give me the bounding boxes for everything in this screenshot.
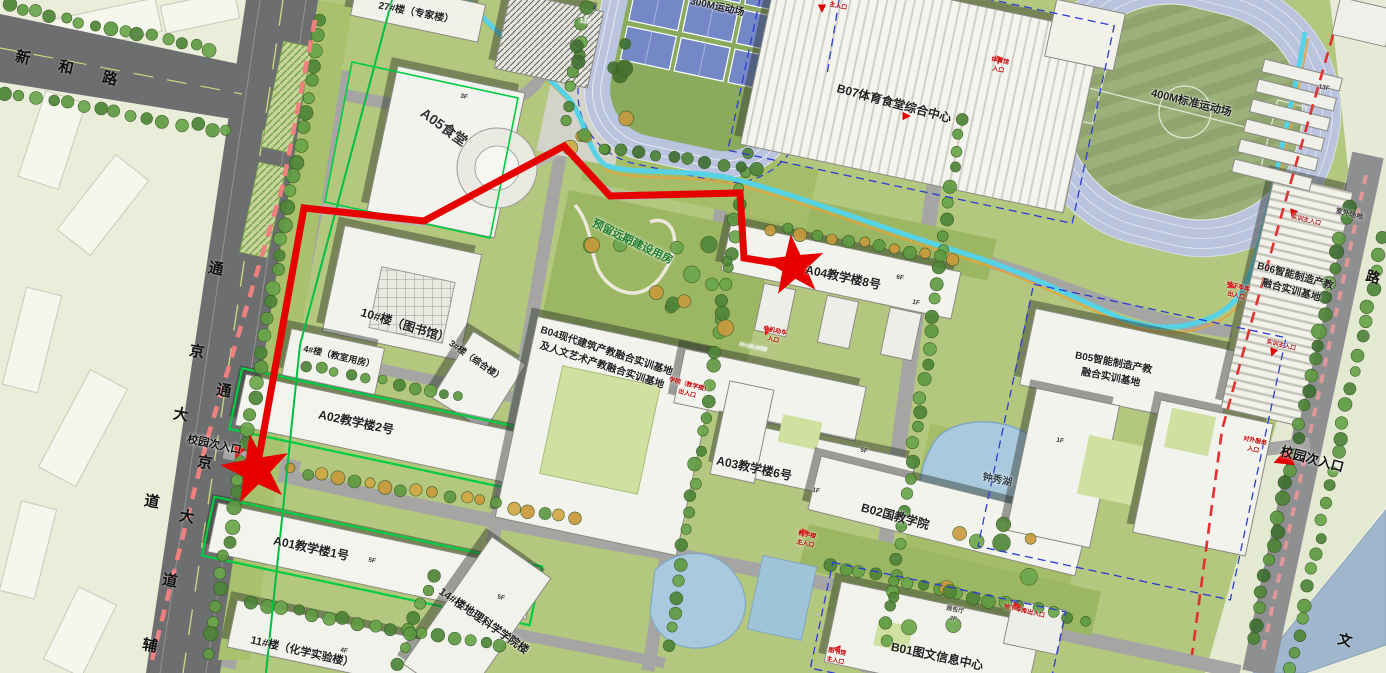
tree-icon [620, 38, 631, 49]
tree-icon [1283, 662, 1295, 673]
tree-icon [564, 101, 575, 112]
tree-icon [942, 197, 953, 208]
tree-icon [632, 146, 645, 159]
tree-icon [403, 627, 416, 640]
tree-icon [561, 115, 572, 126]
tree-icon [717, 320, 734, 337]
tree-icon [1020, 568, 1037, 585]
tree-icon [206, 124, 220, 138]
tree-icon [930, 278, 943, 291]
tree-icon [718, 159, 730, 171]
tree-icon [360, 373, 370, 383]
tree-icon [78, 101, 90, 113]
tree-icon [336, 611, 349, 624]
tree-icon [303, 470, 314, 481]
tree-icon [901, 620, 916, 635]
tree-icon [1319, 291, 1332, 304]
tree-icon [1376, 231, 1386, 243]
tree-icon [1311, 324, 1326, 339]
tree-icon [214, 582, 228, 596]
tree-icon [254, 361, 268, 375]
tree-icon [462, 491, 474, 503]
tree-icon [305, 609, 318, 622]
tree-icon [950, 162, 960, 172]
tree-icon [881, 635, 893, 647]
tree-icon [202, 43, 216, 57]
tree-icon [901, 488, 913, 500]
tree-icon [254, 347, 267, 360]
tree-icon [1257, 569, 1270, 582]
tree-icon [1254, 602, 1266, 614]
tree-icon [378, 481, 392, 495]
tree-icon [1367, 282, 1381, 296]
tree-icon [295, 139, 309, 153]
tree-icon [426, 486, 437, 497]
tree-icon [842, 235, 854, 247]
tree-icon [274, 601, 288, 615]
tree-icon [956, 113, 968, 125]
tree-icon [163, 34, 174, 45]
tree-icon [826, 234, 837, 245]
tree-icon [1324, 480, 1335, 491]
tree-icon [481, 637, 492, 648]
tree-icon [704, 380, 716, 392]
tree-icon [176, 119, 189, 132]
tree-icon [141, 113, 153, 125]
tree-icon [1319, 308, 1333, 322]
tree-icon [1275, 491, 1289, 505]
tree-icon [176, 38, 187, 49]
tree-icon [453, 391, 462, 400]
tree-icon [297, 121, 310, 134]
tree-icon [675, 539, 688, 552]
tree-icon [879, 617, 892, 630]
tree-icon [265, 295, 278, 308]
tree-icon [17, 4, 28, 15]
tree-icon [273, 250, 285, 262]
tree-icon [996, 517, 1011, 532]
tree-icon [243, 409, 255, 421]
tree-icon [284, 185, 296, 197]
tree-icon [384, 624, 396, 636]
tree-icon [683, 266, 700, 283]
tree-icon [1371, 265, 1382, 276]
tree-icon [889, 592, 899, 602]
tree-icon [62, 13, 72, 23]
tree-icon [1267, 539, 1281, 553]
tree-icon [650, 151, 660, 161]
tree-icon [1292, 418, 1304, 430]
tree-icon [663, 640, 675, 652]
tree-icon [906, 455, 919, 468]
tree-icon [444, 491, 456, 503]
tree-icon [192, 117, 205, 130]
tree-icon [649, 285, 663, 299]
tree-icon [615, 144, 627, 156]
tree-icon [580, 1, 594, 15]
tree-icon [130, 27, 144, 41]
tree-icon [906, 436, 918, 448]
tree-icon [155, 115, 168, 128]
tree-icon [1270, 511, 1284, 525]
tree-icon [393, 379, 405, 391]
tree-icon [301, 361, 312, 372]
tree-icon [428, 570, 441, 583]
tree-icon [1330, 263, 1341, 274]
tree-icon [378, 375, 387, 384]
tree-icon [673, 575, 685, 587]
tree-icon [146, 29, 158, 41]
tree-icon [231, 474, 243, 486]
tree-icon [439, 390, 448, 399]
tree-icon [1357, 330, 1369, 342]
tree-icon [681, 524, 691, 534]
tree-icon [953, 526, 967, 540]
tree-icon [860, 237, 870, 247]
tree-icon [669, 151, 680, 162]
tree-icon [1025, 533, 1036, 544]
tree-icon [431, 628, 445, 642]
tree-icon [29, 4, 41, 16]
tree-icon [1360, 300, 1374, 314]
tree-icon [191, 39, 202, 50]
tree-icon [925, 310, 938, 323]
tree-icon [1278, 476, 1292, 490]
tree-icon [923, 359, 934, 370]
tree-icon [812, 230, 823, 241]
tree-icon [323, 612, 336, 625]
tree-icon [934, 250, 946, 262]
tree-icon [43, 10, 56, 23]
tree-icon [715, 306, 729, 320]
tree-icon [702, 395, 715, 408]
tree-icon [1293, 432, 1305, 444]
tree-icon [278, 218, 293, 233]
tree-icon [108, 105, 120, 117]
tree-icon [925, 325, 938, 338]
tree-icon [225, 520, 240, 535]
tree-icon [895, 538, 906, 549]
tree-icon [424, 385, 437, 398]
tree-icon [209, 600, 221, 612]
tree-icon [670, 592, 683, 605]
tree-icon [316, 362, 327, 373]
tree-icon [1081, 616, 1091, 626]
tree-icon [294, 605, 304, 615]
tree-icon [913, 392, 926, 405]
tree-icon [423, 585, 434, 596]
tree-icon [1338, 398, 1352, 412]
tree-icon [736, 162, 746, 172]
tree-icon [1248, 632, 1260, 644]
tree-icon [13, 90, 24, 101]
tree-icon [793, 228, 807, 242]
tree-icon [578, 129, 591, 142]
tree-icon [914, 406, 927, 419]
tree-icon [214, 567, 226, 579]
tree-icon [409, 383, 421, 395]
tree-icon [250, 376, 264, 390]
tree-icon [465, 635, 476, 646]
tree-icon [1271, 525, 1285, 539]
tree-icon [873, 239, 885, 251]
tree-icon [249, 391, 263, 405]
tree-icon [224, 536, 236, 548]
tree-icon [708, 346, 721, 359]
tree-icon [1298, 599, 1312, 613]
tree-icon [684, 507, 695, 518]
tree-icon [946, 617, 961, 632]
tree-icon [684, 490, 696, 502]
tree-icon [204, 626, 219, 641]
tree-icon [722, 256, 732, 266]
tree-icon [923, 343, 936, 356]
tree-icon [272, 263, 284, 275]
map-viewport[interactable]: 校园次入口校园次入口对外服务 入口27#楼（专家楼）A05食堂预留远期建设用房1… [0, 0, 1386, 673]
tree-icon [0, 87, 12, 101]
tree-icon [491, 497, 502, 508]
tree-icon [1297, 613, 1309, 625]
tree-icon [706, 278, 719, 291]
tree-icon [918, 372, 931, 385]
tree-icon [280, 200, 295, 215]
tree-icon [941, 213, 954, 226]
tree-icon [688, 457, 702, 471]
tree-icon [1360, 315, 1373, 328]
tree-icon [346, 370, 357, 381]
tree-icon [929, 293, 940, 304]
tree-icon [565, 81, 576, 92]
tree-icon [946, 253, 959, 266]
tree-icon [61, 96, 74, 109]
tree-icon [553, 509, 565, 521]
tree-icon [1294, 630, 1306, 642]
tree-icon [750, 162, 764, 176]
tree-icon [701, 236, 718, 253]
tree-icon [1335, 417, 1348, 430]
tree-icon [217, 550, 228, 561]
tree-icon [1033, 602, 1044, 613]
tree-icon [667, 622, 677, 632]
tree-icon [95, 102, 108, 115]
tree-icon [73, 18, 84, 29]
tree-icon [240, 423, 254, 437]
tree-icon [619, 111, 634, 126]
tree-icon [889, 244, 899, 254]
tree-icon [448, 632, 461, 645]
tree-icon [1333, 445, 1346, 458]
tree-icon [1334, 432, 1348, 446]
tree-icon [407, 611, 420, 624]
tree-icon [953, 129, 963, 139]
tree-icon [1284, 464, 1297, 477]
tree-icon [669, 607, 681, 619]
tree-icon [416, 628, 427, 639]
tree-icon [613, 238, 627, 252]
tree-icon [701, 413, 712, 424]
tree-icon [306, 74, 318, 86]
tree-icon [1254, 586, 1266, 598]
tree-icon [1298, 399, 1310, 411]
tree-icon [678, 295, 691, 308]
tree-icon [943, 180, 956, 193]
tree-icon [125, 110, 136, 121]
tree-icon [394, 485, 406, 497]
tree-icon [299, 106, 314, 121]
tree-icon [920, 248, 931, 259]
tree-icon [244, 596, 257, 609]
tree-icon [521, 505, 535, 519]
tree-icon [1289, 647, 1300, 658]
tree-icon [30, 92, 43, 105]
tree-icon [1310, 548, 1323, 561]
tree-icon [1312, 340, 1324, 352]
tree-icon [410, 484, 422, 496]
tree-icon [696, 446, 706, 456]
tree-icon [1351, 349, 1364, 362]
tree-icon [303, 93, 314, 104]
tree-icon [889, 576, 899, 586]
tree-icon [365, 478, 375, 488]
tree-icon [1350, 367, 1360, 377]
tree-icon [569, 512, 582, 525]
tree-icon [207, 617, 218, 628]
tree-icon [1250, 619, 1264, 633]
tree-icon [599, 144, 609, 154]
tree-icon [906, 474, 917, 485]
tree-icon [261, 312, 274, 325]
tree-icon [1322, 276, 1336, 290]
tree-icon [912, 421, 923, 432]
tree-icon [1344, 383, 1356, 395]
tree-icon [903, 246, 916, 259]
tree-icon [951, 146, 962, 157]
tree-icon [698, 156, 710, 168]
tree-icon [508, 502, 521, 515]
tree-icon [203, 649, 214, 660]
tree-icon [1332, 232, 1345, 245]
tree-icon [493, 639, 506, 652]
tree-icon [720, 278, 732, 290]
tree-icon [289, 155, 304, 170]
tree-icon [1263, 554, 1274, 565]
tree-icon [415, 598, 426, 609]
tree-icon [575, 17, 588, 30]
tree-icon [584, 237, 599, 252]
tree-icon [3, 0, 17, 11]
tree-icon [715, 294, 727, 306]
tree-icon [937, 231, 948, 242]
tree-icon [1341, 213, 1353, 225]
tree-icon [1301, 580, 1314, 593]
tree-icon [227, 500, 242, 515]
tree-icon [690, 478, 701, 489]
tree-icon [870, 568, 882, 580]
tree-icon [670, 241, 683, 254]
tree-icon [370, 620, 382, 632]
tree-icon [993, 534, 1011, 552]
tree-icon [572, 55, 586, 69]
tree-icon [1303, 385, 1316, 398]
tree-icon [1310, 353, 1322, 365]
tree-icon [1328, 466, 1338, 476]
tree-icon [981, 594, 995, 608]
tree-icon [698, 426, 709, 437]
tree-icon [932, 261, 945, 274]
tree-icon [570, 40, 583, 53]
tree-icon [1305, 369, 1318, 382]
tree-icon [765, 225, 776, 236]
tree-icon [1320, 497, 1332, 509]
tree-icon [1329, 245, 1343, 259]
tree-icon [824, 559, 837, 572]
tree-icon [258, 329, 271, 342]
tree-icon [351, 618, 364, 631]
tree-icon [783, 223, 793, 233]
tree-icon [475, 495, 485, 505]
tree-icon [49, 95, 60, 106]
tree-icon [90, 21, 100, 31]
tree-icon [221, 125, 231, 135]
tree-icon [331, 471, 345, 485]
tree-icon [348, 475, 361, 488]
tree-icon [400, 643, 410, 653]
tree-icon [898, 505, 910, 517]
tree-icon [391, 658, 404, 671]
tree-icon [890, 553, 902, 565]
tree-icon [674, 558, 687, 571]
tree-icon [616, 60, 633, 77]
tree-icon [1305, 563, 1317, 575]
tree-icon [1315, 514, 1327, 526]
tree-icon [329, 367, 338, 376]
tree-icon [315, 468, 328, 481]
tree-icon [1316, 534, 1326, 544]
tree-icon [1371, 248, 1385, 262]
tree-icon [1343, 200, 1357, 214]
tree-icon [707, 359, 721, 373]
tree-icon [273, 232, 286, 245]
tree-icon [896, 521, 907, 532]
tree-icon [539, 507, 551, 519]
tree-icon [266, 281, 281, 296]
tree-icon [104, 22, 118, 36]
tree-icon [682, 153, 694, 165]
campus-map-canvas [0, 0, 1386, 673]
